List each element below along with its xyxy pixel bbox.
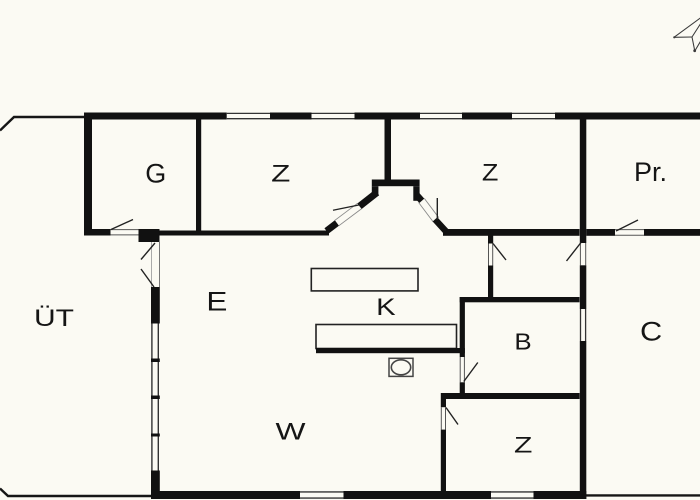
svg-text:Z: Z — [271, 160, 290, 187]
svg-text:B: B — [514, 329, 531, 355]
svg-text:G: G — [145, 159, 166, 189]
svg-text:C: C — [640, 317, 662, 347]
svg-text:E: E — [206, 286, 227, 316]
svg-text:K: K — [376, 294, 396, 321]
svg-text:ÜT: ÜT — [34, 305, 74, 332]
svg-text:Pr.: Pr. — [634, 157, 667, 187]
svg-text:W: W — [276, 419, 306, 446]
svg-text:Z: Z — [482, 160, 499, 187]
svg-text:Z: Z — [514, 433, 533, 458]
